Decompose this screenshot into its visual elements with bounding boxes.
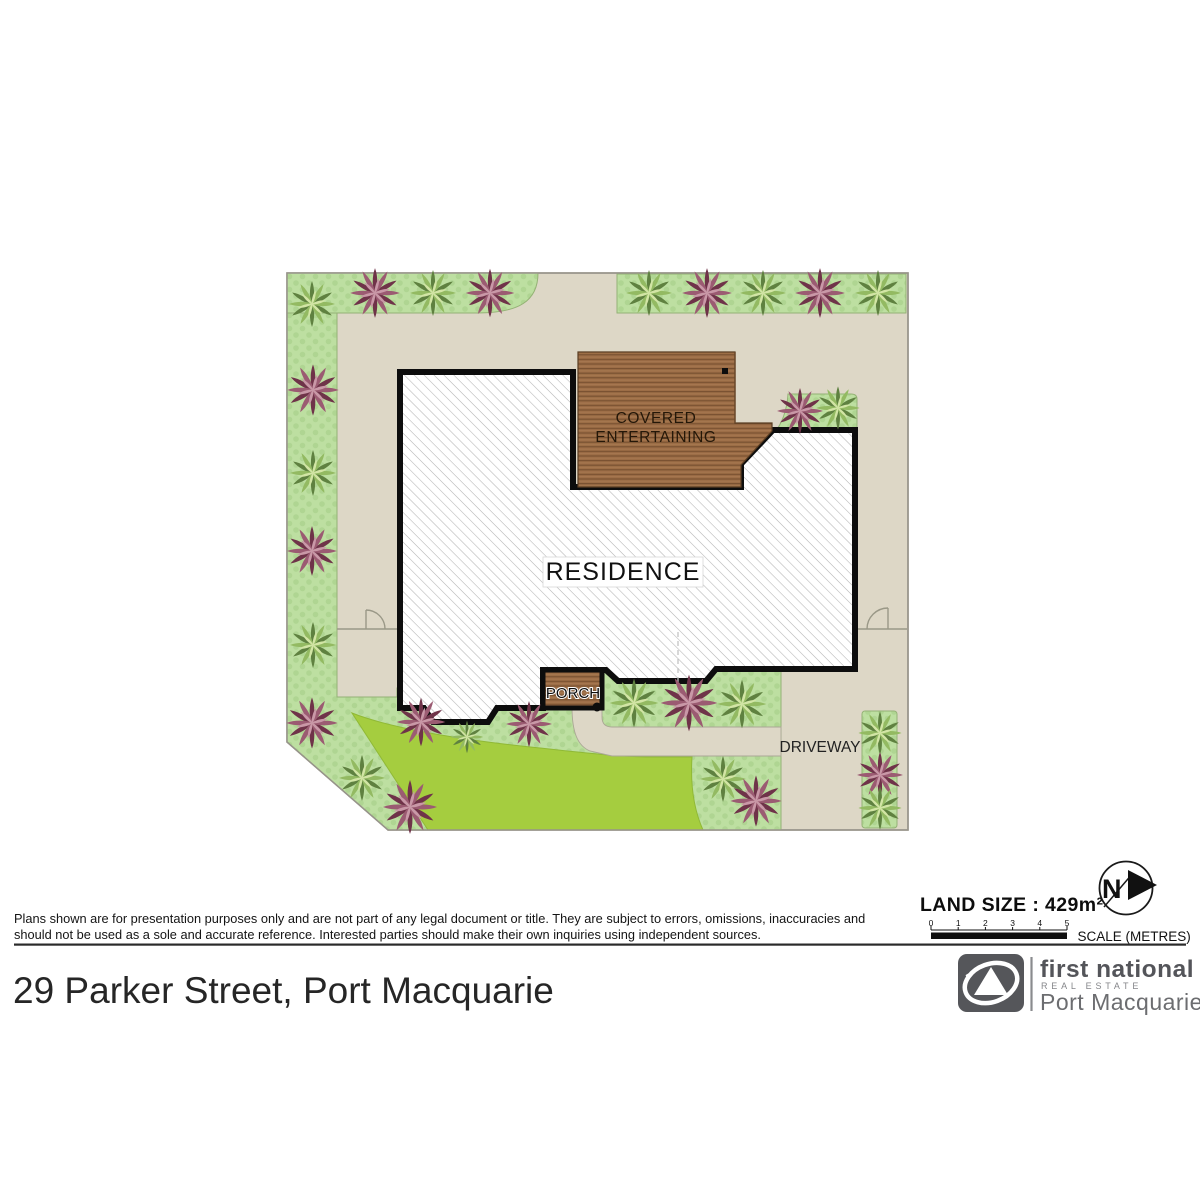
land-size-label: LAND SIZE : 429m² xyxy=(920,894,1104,916)
covered-entertaining-label-line1: COVERED xyxy=(616,410,697,427)
logo-brand-text: first national xyxy=(1040,956,1194,983)
site-plan-page: COVERED ENTERTAINING PORCH RESIDENCE DRI… xyxy=(0,0,1200,1200)
first-national-logo-icon xyxy=(958,954,1024,1012)
disclaimer: Plans shown are for presentation purpose… xyxy=(14,911,865,942)
page-title-address: 29 Parker Street, Port Macquarie xyxy=(13,970,554,1011)
scale-tick-4: 4 xyxy=(1037,918,1042,928)
agency-logo: first national REAL ESTATE Port Macquari… xyxy=(958,954,1200,1015)
divider-line xyxy=(14,944,1186,946)
disclaimer-line1: Plans shown are for presentation purpose… xyxy=(14,911,865,926)
porch-deck: PORCH xyxy=(543,670,602,712)
residence-label: RESIDENCE xyxy=(546,558,701,586)
disclaimer-line2: should not be used as a sole and accurat… xyxy=(14,927,761,942)
porch-post-marker xyxy=(593,703,602,712)
residence-label-box: RESIDENCE xyxy=(543,557,703,587)
deck-post-marker xyxy=(722,368,728,374)
scale-tick-2: 2 xyxy=(983,918,988,928)
land-size-block: LAND SIZE : 429m² xyxy=(920,894,1104,916)
scale-metres-label: SCALE (METRES) xyxy=(1078,929,1191,944)
scale-bar: 0 1 2 3 4 5 SCALE (METRES) xyxy=(929,918,1191,944)
north-label: N xyxy=(1102,874,1122,904)
scale-tick-1: 1 xyxy=(956,918,961,928)
site-plan-canvas: COVERED ENTERTAINING PORCH RESIDENCE DRI… xyxy=(0,0,1200,1200)
scale-tick-3: 3 xyxy=(1010,918,1015,928)
porch-label: PORCH xyxy=(546,685,600,702)
covered-entertaining-label-line2: ENTERTAINING xyxy=(595,429,716,446)
driveway-label: DRIVEWAY xyxy=(780,739,861,756)
north-compass-icon: N xyxy=(1100,862,1158,915)
site-plan: COVERED ENTERTAINING PORCH RESIDENCE DRI… xyxy=(279,260,910,843)
logo-office-text: Port Macquarie xyxy=(1040,989,1200,1015)
